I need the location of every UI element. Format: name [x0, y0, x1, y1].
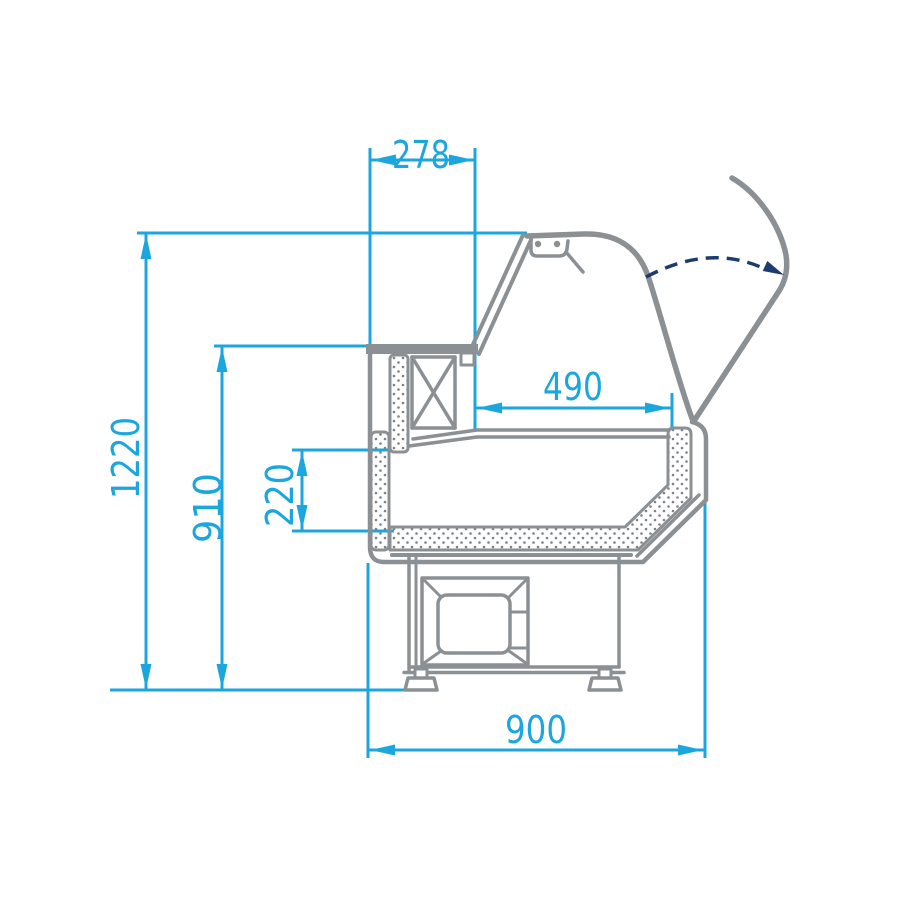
arrow-1220-up — [141, 234, 152, 259]
front-glass-open — [694, 178, 787, 421]
dim-label-220: 220 — [258, 463, 302, 527]
dim-label-900: 900 — [505, 708, 567, 752]
hinge-screw-left — [535, 241, 541, 247]
hinge-stay — [566, 252, 583, 272]
dim-label-910: 910 — [186, 473, 230, 543]
dim-label-490: 490 — [543, 365, 603, 409]
counter-section-drawing: 278 490 900 1220 910 220 — [0, 0, 900, 900]
rear-glass-inner — [479, 240, 531, 354]
compressor-tick-bl — [424, 651, 441, 663]
compressor-side-box — [510, 612, 528, 648]
arrow-1220-down — [141, 664, 152, 689]
glass-mount-block — [461, 353, 474, 365]
arrow-910-up — [217, 347, 228, 372]
glass-opening-motion — [646, 258, 784, 277]
counter-structure — [366, 178, 787, 690]
rear-glass-outer — [470, 235, 523, 351]
arrow-900-left — [370, 745, 395, 756]
arrow-900-right — [678, 745, 703, 756]
dim-label-1220: 1220 — [104, 417, 148, 499]
foot-left-base — [405, 678, 437, 690]
arrow-490-left — [477, 403, 502, 414]
foot-right-base — [589, 678, 621, 690]
opening-arc — [646, 258, 765, 277]
hinge-screw-right — [554, 241, 560, 247]
arrow-910-down — [217, 664, 228, 689]
display-deck-bottom — [409, 437, 669, 446]
opening-direction-arrow-icon — [763, 261, 784, 275]
dim-label-278: 278 — [392, 133, 450, 177]
tub-insulation-band — [390, 428, 691, 550]
compressor-tick-br — [509, 651, 526, 663]
rear-insulation-column — [390, 355, 408, 452]
left-wall-insulation — [371, 432, 389, 550]
technical-drawing-canvas: 278 490 900 1220 910 220 — [0, 0, 900, 900]
compressor-tick-tl — [424, 580, 441, 597]
compressor-body — [438, 595, 510, 653]
compressor-tick-tr — [509, 580, 526, 597]
arrow-490-right — [645, 403, 670, 414]
arrow-278-right — [449, 155, 474, 166]
